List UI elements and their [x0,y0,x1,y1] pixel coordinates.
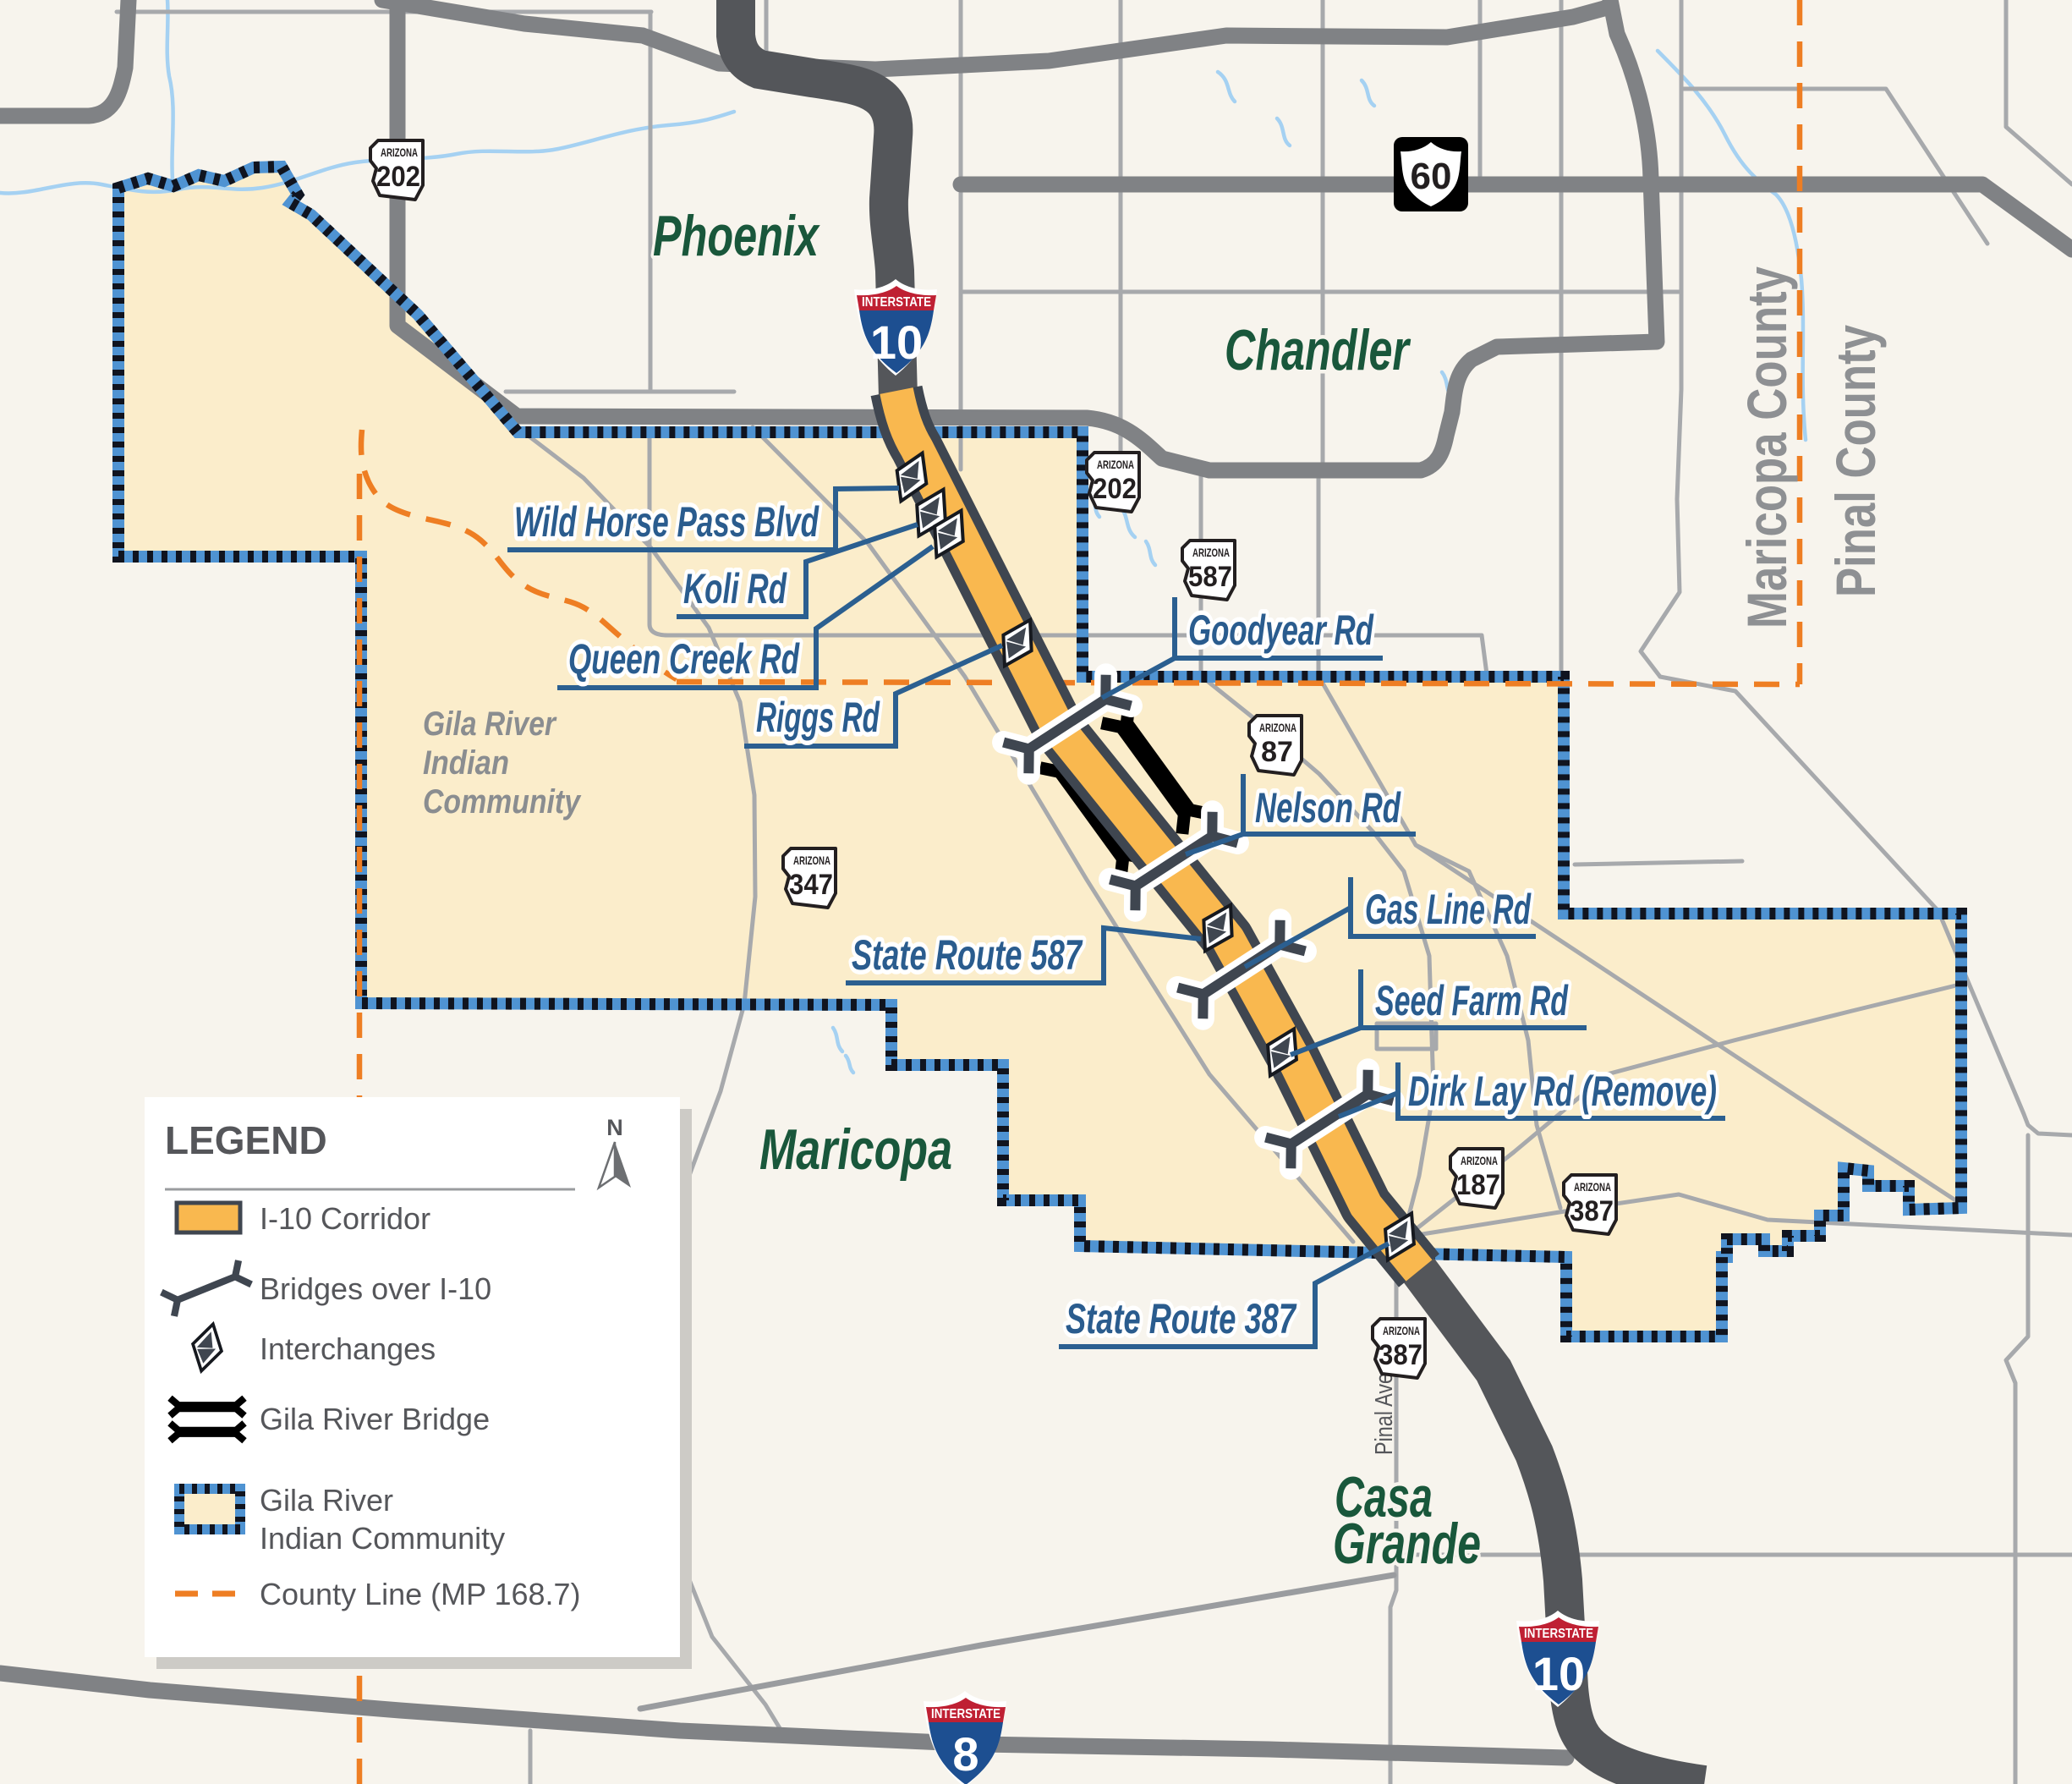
svg-text:ARIZONA: ARIZONA [1259,721,1296,734]
svg-text:Pinal County: Pinal County [1824,325,1887,597]
svg-text:8: 8 [952,1727,978,1781]
svg-text:Goodyear Rd: Goodyear Rd [1188,607,1374,654]
svg-text:Gas Line Rd: Gas Line Rd [1365,886,1532,933]
svg-text:87: 87 [1261,736,1293,768]
svg-text:INTERSTATE: INTERSTATE [931,1707,1000,1721]
svg-text:387: 387 [1379,1339,1422,1371]
svg-text:Indian: Indian [423,744,509,782]
svg-text:Seed Farm Rd: Seed Farm Rd [1375,977,1569,1024]
svg-text:387: 387 [1570,1195,1614,1227]
svg-text:ARIZONA: ARIZONA [793,854,830,867]
svg-text:202: 202 [376,161,420,193]
svg-text:Community: Community [423,783,581,821]
svg-text:I-10 Corridor: I-10 Corridor [260,1201,430,1236]
svg-text:60: 60 [1411,156,1452,197]
svg-text:Indian Community: Indian Community [260,1521,505,1556]
svg-text:10: 10 [1532,1647,1585,1700]
svg-text:Gila River Bridge: Gila River Bridge [260,1402,490,1436]
svg-text:Queen Creek Rd: Queen Creek Rd [568,635,800,683]
svg-text:County Line (MP 168.7): County Line (MP 168.7) [260,1577,581,1611]
svg-text:ARIZONA: ARIZONA [1574,1180,1611,1194]
svg-text:N: N [606,1115,623,1140]
svg-text:Gila River: Gila River [260,1483,393,1518]
svg-text:State Route 387: State Route 387 [1066,1295,1297,1342]
svg-text:LEGEND: LEGEND [165,1118,327,1162]
svg-text:Maricopa County: Maricopa County [1735,266,1798,629]
svg-text:Dirk Lay Rd (Remove): Dirk Lay Rd (Remove) [1408,1068,1717,1115]
svg-text:10: 10 [870,316,923,369]
svg-text:ARIZONA: ARIZONA [1097,458,1134,471]
svg-text:INTERSTATE: INTERSTATE [862,295,931,310]
svg-text:Pinal Ave: Pinal Ave [1371,1373,1398,1455]
svg-text:Interchanges: Interchanges [260,1331,436,1366]
svg-text:Riggs Rd: Riggs Rd [756,694,880,741]
svg-text:ARIZONA: ARIZONA [381,145,418,159]
svg-text:Chandler: Chandler [1225,318,1411,382]
svg-text:ARIZONA: ARIZONA [1383,1324,1420,1337]
svg-text:Wild Horse Pass Blvd: Wild Horse Pass Blvd [514,498,819,546]
svg-text:Bridges over I-10: Bridges over I-10 [260,1271,491,1306]
svg-text:State Route 587: State Route 587 [852,931,1083,979]
svg-text:INTERSTATE: INTERSTATE [1524,1627,1593,1641]
svg-text:Phoenix: Phoenix [653,204,820,268]
svg-text:587: 587 [1188,561,1232,593]
svg-text:Grande: Grande [1333,1512,1481,1576]
svg-text:ARIZONA: ARIZONA [1192,546,1230,559]
svg-text:Nelson Rd: Nelson Rd [1255,784,1401,832]
svg-text:347: 347 [789,869,833,901]
svg-text:Koli Rd: Koli Rd [683,565,787,612]
svg-text:Maricopa: Maricopa [759,1117,952,1182]
svg-text:202: 202 [1093,473,1137,505]
svg-text:Gila River: Gila River [423,705,557,743]
svg-text:187: 187 [1456,1169,1500,1201]
svg-text:ARIZONA: ARIZONA [1461,1154,1498,1167]
